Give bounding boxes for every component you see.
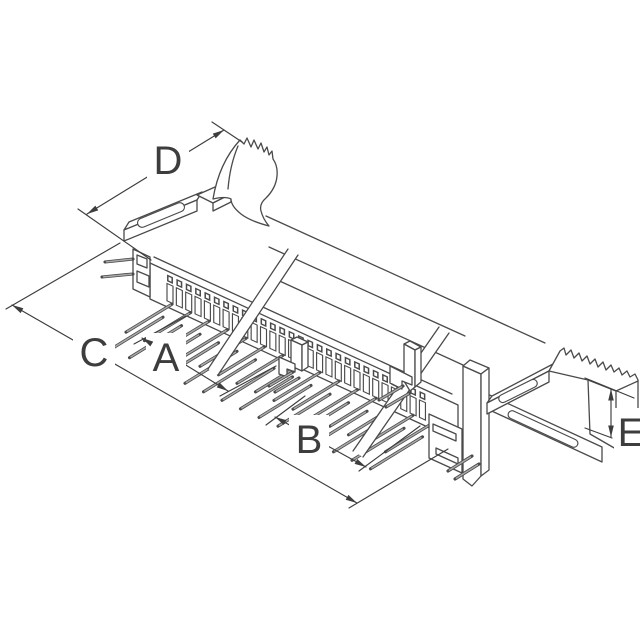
contact-hole <box>345 358 349 365</box>
contact-slot <box>317 352 323 372</box>
contact-slot <box>326 357 332 377</box>
lock-tab-side <box>415 347 421 387</box>
contact-slot <box>373 378 379 398</box>
contact-slot <box>270 331 276 351</box>
contact-hole <box>374 371 378 378</box>
contact-slot <box>354 370 360 390</box>
technical-drawing-page: D C A B E <box>0 0 640 640</box>
back-wall-inner-edge <box>269 247 465 336</box>
contact-hole <box>233 306 237 313</box>
extension-line <box>212 122 242 142</box>
dimension-label-d: D <box>154 139 183 183</box>
arrowhead <box>12 305 23 313</box>
lock-tab-side <box>302 342 308 371</box>
contact-hole <box>261 319 265 326</box>
contact-slot <box>335 361 341 381</box>
contact-hole <box>196 289 200 296</box>
contact-hole <box>187 284 191 291</box>
contact-hole <box>317 345 321 352</box>
arrowhead <box>87 206 98 214</box>
contact-hole <box>383 375 387 382</box>
contact-slot <box>204 301 210 321</box>
contact-hole <box>224 302 228 309</box>
contact-hole <box>177 280 181 287</box>
contact-hole <box>168 276 172 283</box>
arrowhead <box>213 130 224 138</box>
contact-slot <box>195 296 201 316</box>
contact-hole <box>205 293 209 300</box>
arrowhead <box>355 459 366 467</box>
right-ejector-latch <box>429 348 638 486</box>
dimension-label-c: C <box>80 331 109 375</box>
pivot-tower-side <box>481 368 489 476</box>
arrowhead <box>346 495 357 503</box>
back-wall-top-edge <box>266 216 545 343</box>
contact-hole <box>355 362 359 369</box>
contact-slot <box>214 305 220 325</box>
contact-slot <box>419 400 425 420</box>
contact-hole <box>271 323 275 330</box>
contact-hole <box>308 340 312 347</box>
lower-rail-slot <box>507 409 579 448</box>
contact-slot <box>167 283 173 303</box>
dimension-annotations: D C A B E <box>6 122 640 508</box>
dimension-label-b: B <box>296 418 323 462</box>
contact-hole <box>336 353 340 360</box>
contact-hole <box>364 366 368 373</box>
left-ejector-latch <box>124 138 277 241</box>
contact-slot <box>363 374 369 394</box>
contact-hole <box>327 349 331 356</box>
connector-technical-drawing: D C A B E <box>0 0 640 640</box>
contact-slot <box>176 288 182 308</box>
contact-slot <box>223 309 229 329</box>
contact-slot <box>410 396 416 416</box>
contact-slot <box>279 335 285 355</box>
serrated-thumb-pad <box>213 138 277 226</box>
contact-slot <box>186 292 192 312</box>
left-board-pegs <box>102 259 133 277</box>
contact-hole <box>215 297 219 304</box>
contact-slot <box>261 327 267 347</box>
contact-slot <box>251 322 257 342</box>
contact-hole <box>280 327 284 334</box>
contact-slot <box>345 365 351 385</box>
contact-hole <box>289 332 293 339</box>
dimension-label-e: E <box>618 411 640 455</box>
contact-hole <box>420 392 424 399</box>
extension-line <box>349 449 448 508</box>
dimension-label-a: A <box>153 336 180 380</box>
contact-slot <box>382 383 388 403</box>
